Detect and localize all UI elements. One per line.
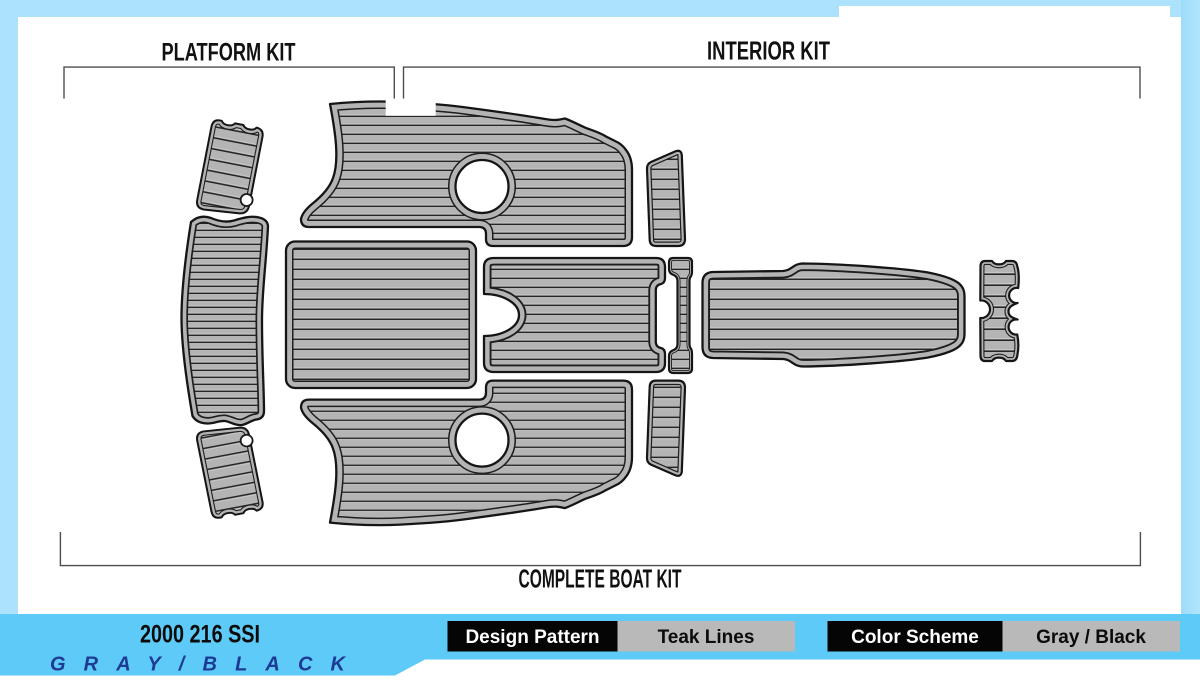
svg-text:PLATFORM KIT: PLATFORM KIT [162,38,296,66]
svg-text:Teak Lines: Teak Lines [658,627,755,648]
svg-text:Design Pattern: Design Pattern [465,627,599,648]
svg-text:Gray / Black: Gray / Black [1036,627,1146,648]
svg-text:2000 216 SSI: 2000 216 SSI [140,621,260,649]
svg-text:COMPLETE BOAT KIT: COMPLETE BOAT KIT [519,564,682,594]
svg-text:INTERIOR KIT: INTERIOR KIT [707,36,830,66]
svg-text:Color Scheme: Color Scheme [851,627,979,648]
